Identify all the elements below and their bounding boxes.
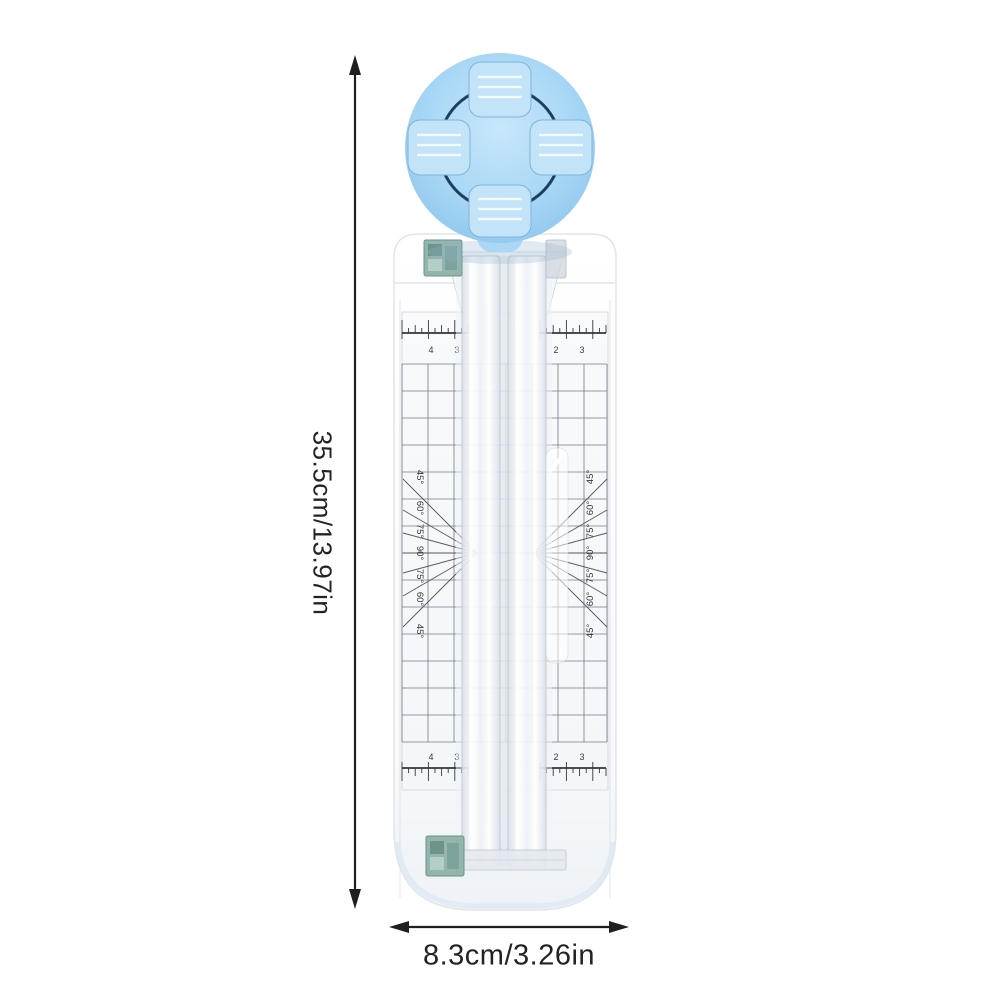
angle-label: 90° <box>414 546 425 561</box>
arrowhead-right <box>609 921 629 933</box>
slider-strip <box>546 448 568 663</box>
angle-label: 60° <box>585 501 596 516</box>
angle-label: 45° <box>585 470 596 485</box>
scale-number: 2 <box>553 752 558 762</box>
angle-label: 75° <box>585 569 596 584</box>
knob-tab-left <box>408 120 470 175</box>
clip-detail <box>447 843 459 869</box>
cutting-rail <box>446 252 568 870</box>
angle-label: 60° <box>585 592 596 607</box>
angle-label: 75° <box>414 524 425 539</box>
angle-label: 45° <box>414 624 425 639</box>
arrowhead-left <box>389 921 409 933</box>
rail-tube-right <box>508 256 546 866</box>
arrowhead-up <box>349 55 361 75</box>
rotary-knob <box>405 53 595 264</box>
angle-label: 75° <box>414 569 425 584</box>
angle-label: 60° <box>414 592 425 607</box>
scale-number: 3 <box>579 752 584 762</box>
tab-body <box>469 62 531 117</box>
angle-label: 45° <box>585 624 596 639</box>
clip-detail <box>428 259 442 271</box>
height-dimension-label: 35.5cm/13.97in <box>307 431 338 616</box>
arrowhead-down <box>349 889 361 909</box>
width-dimension-label: 8.3cm/3.26in <box>423 940 595 973</box>
width-dimension-arrow <box>389 921 629 933</box>
angle-label: 60° <box>414 501 425 516</box>
clip-detail <box>430 841 444 854</box>
rail-slit <box>500 256 508 866</box>
bottom-left-clip <box>426 836 464 876</box>
tab-body <box>408 120 470 175</box>
angle-label: 75° <box>585 524 596 539</box>
knob-tab-top <box>469 62 531 117</box>
tab-body <box>530 120 592 175</box>
scale-number: 3 <box>579 345 584 355</box>
paper-trimmer-illustration: 45° 60° 75° 90° 75° 60° 45° 45° 60° 75° … <box>0 0 1000 1000</box>
angle-label: 90° <box>585 546 596 561</box>
tab-body <box>469 185 531 237</box>
knob-tab-right <box>530 120 592 175</box>
rail-tube-left <box>462 256 500 866</box>
angle-label: 45° <box>414 470 425 485</box>
scale-number: 4 <box>428 345 433 355</box>
product-dimension-image: 45° 60° 75° 90° 75° 60° 45° 45° 60° 75° … <box>0 0 1000 1000</box>
scale-number: 2 <box>553 345 558 355</box>
scale-number: 4 <box>428 752 433 762</box>
clip-detail <box>430 857 444 870</box>
height-dimension-arrow <box>349 55 361 909</box>
knob-tab-bottom <box>469 185 531 237</box>
